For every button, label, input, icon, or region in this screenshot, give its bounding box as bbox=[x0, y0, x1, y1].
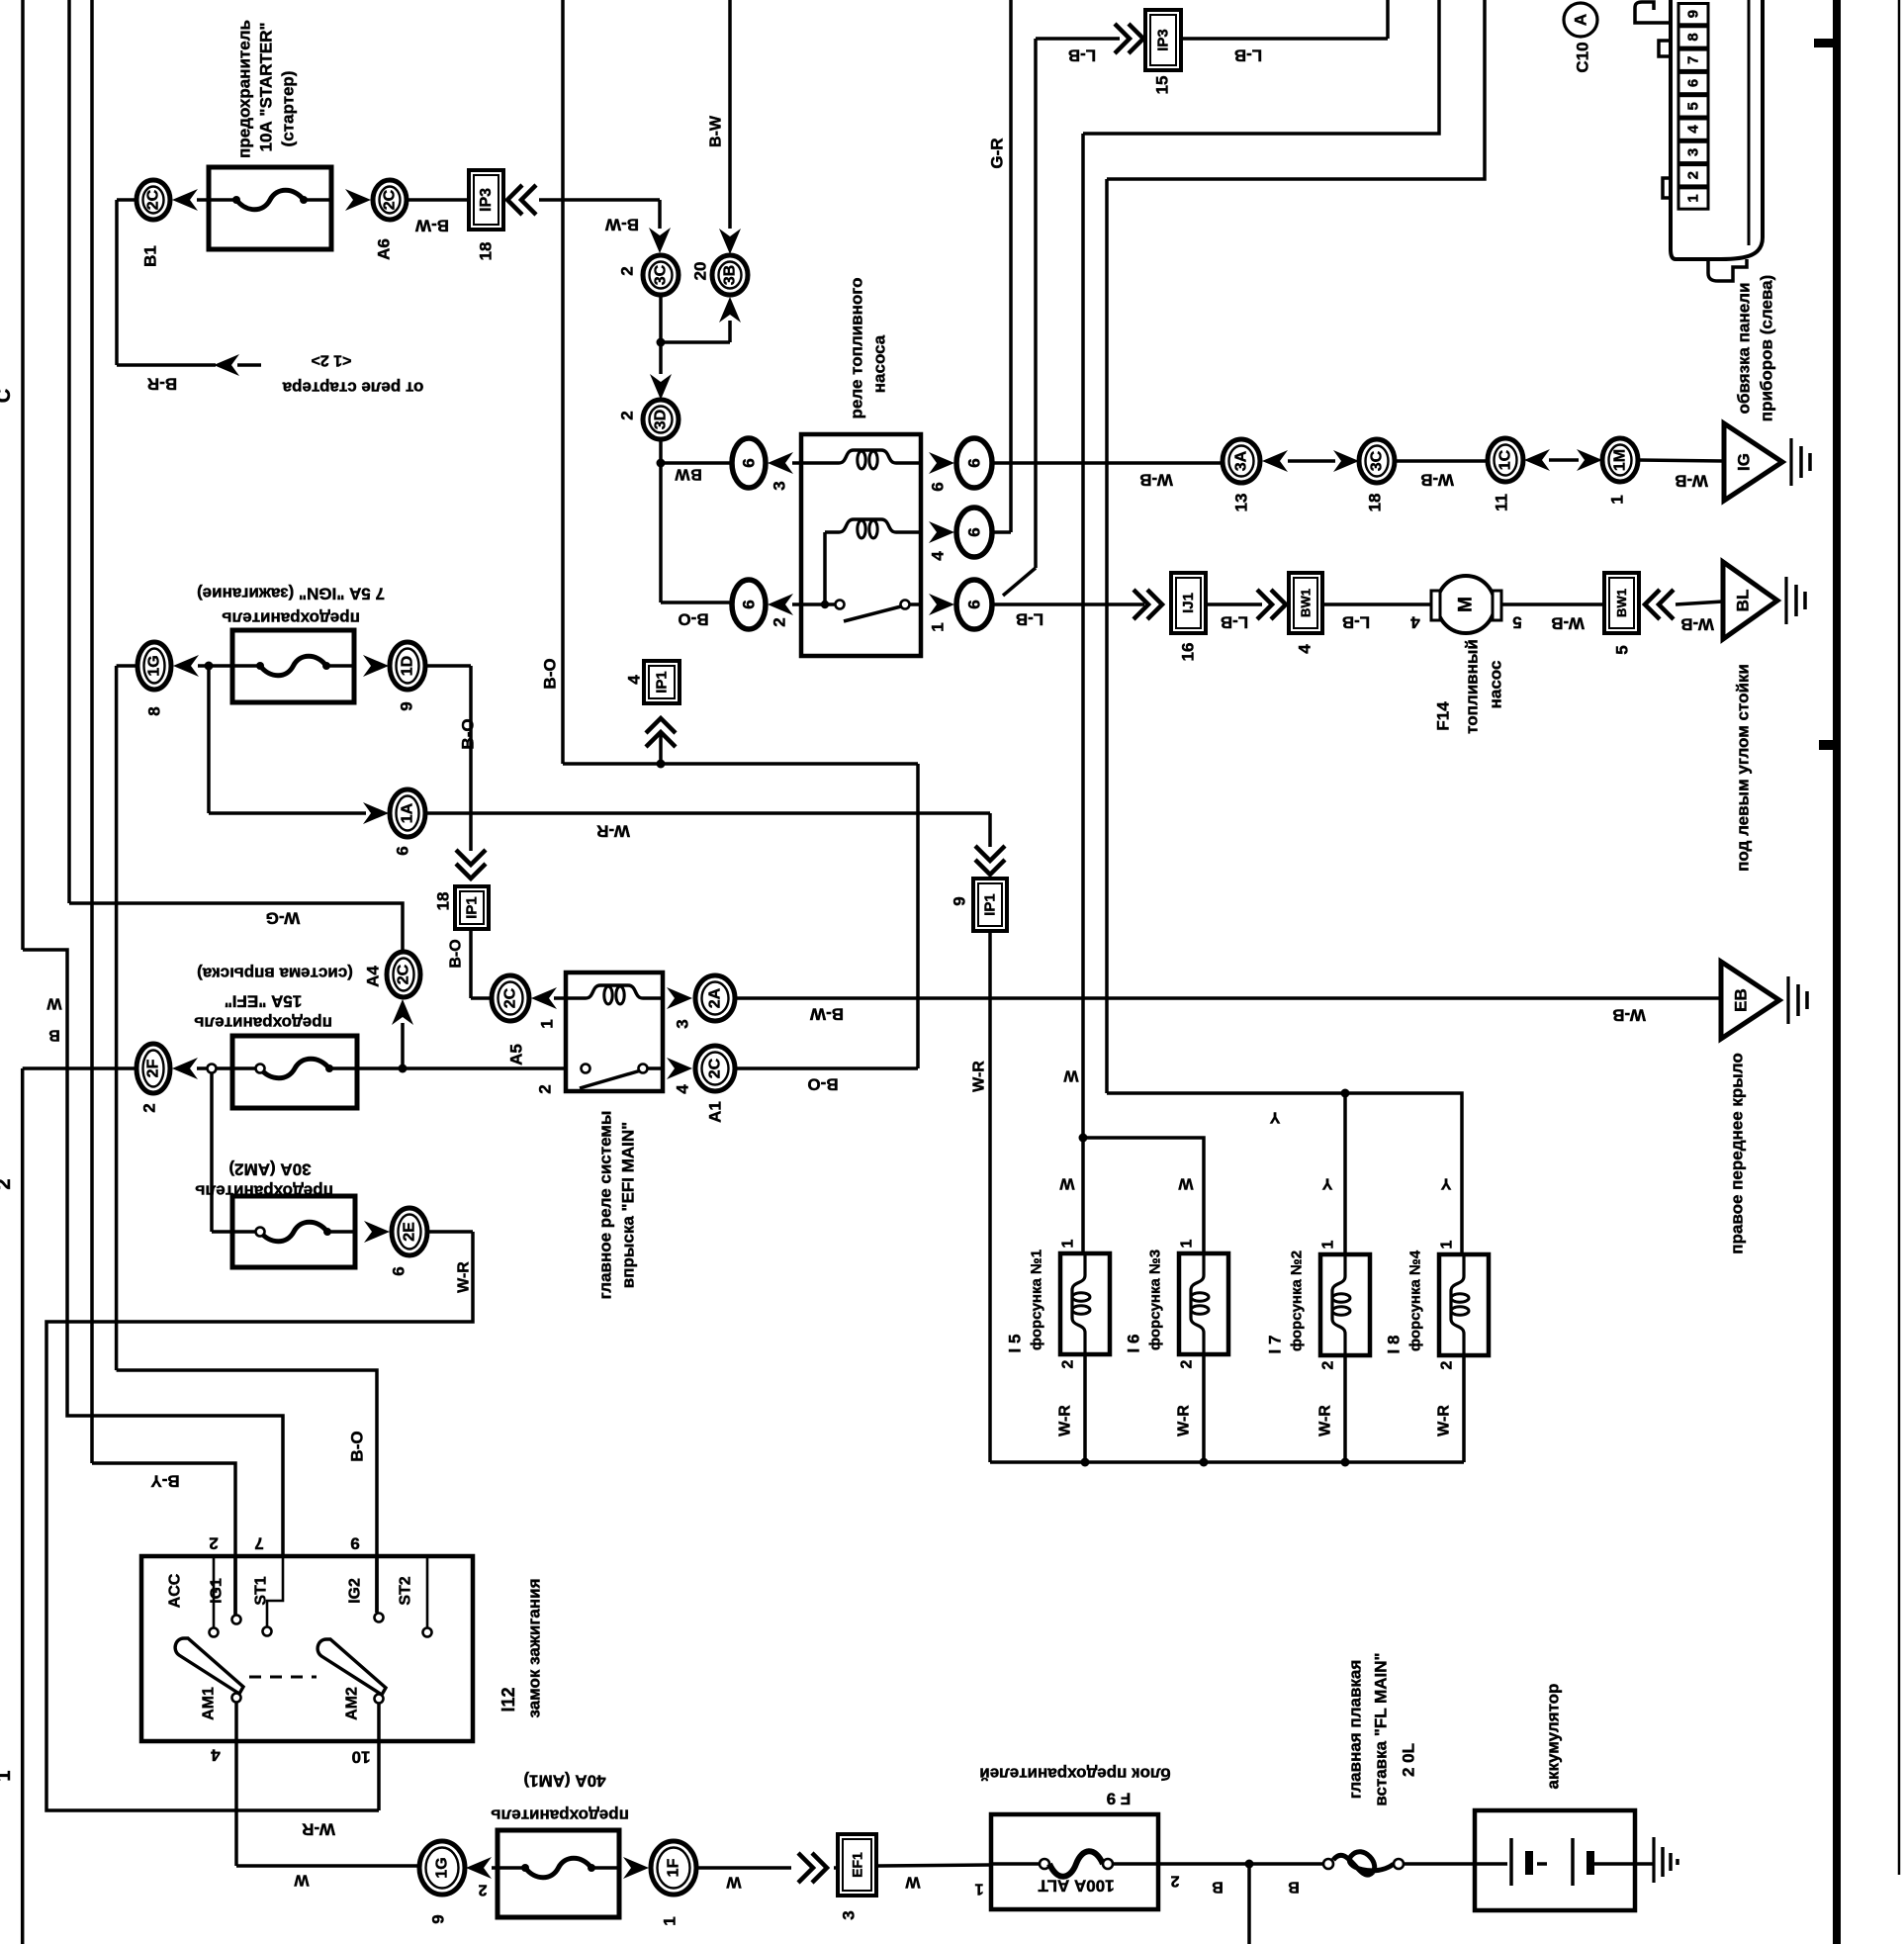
svg-text:W-R: W-R bbox=[971, 1061, 988, 1092]
svg-text:1: 1 bbox=[1685, 194, 1702, 202]
svg-text:B-W: B-W bbox=[708, 115, 725, 147]
svg-text:7: 7 bbox=[254, 1534, 263, 1553]
svg-text:IP3: IP3 bbox=[478, 188, 495, 212]
svg-text:W-B: W-B bbox=[1420, 471, 1454, 490]
svg-text:L-B: L-B bbox=[1016, 610, 1043, 629]
svg-text:А6: А6 bbox=[375, 238, 394, 260]
svg-text:2: 2 bbox=[1685, 171, 1702, 179]
svg-text:2: 2 bbox=[1179, 1359, 1196, 1368]
svg-text:4: 4 bbox=[1685, 125, 1702, 134]
svg-text:W-R: W-R bbox=[1176, 1405, 1193, 1436]
svg-text:20: 20 bbox=[691, 262, 710, 281]
svg-text:30А (АМ2): 30А (АМ2) bbox=[228, 1160, 311, 1179]
svg-text:4: 4 bbox=[674, 1084, 692, 1094]
svg-text:5: 5 bbox=[1613, 645, 1632, 654]
svg-text:7 5А "IGN" (зажигание): 7 5А "IGN" (зажигание) bbox=[197, 585, 385, 603]
svg-text:L-B: L-B bbox=[1234, 46, 1262, 65]
svg-text:насоса: насоса bbox=[870, 334, 889, 393]
svg-text:1G: 1G bbox=[434, 1857, 451, 1878]
svg-text:BW1: BW1 bbox=[1614, 589, 1629, 617]
svg-text:G-R: G-R bbox=[988, 138, 1007, 168]
svg-text:W-R: W-R bbox=[596, 822, 630, 841]
svg-text:15: 15 bbox=[1153, 76, 1172, 95]
svg-text:4: 4 bbox=[625, 675, 644, 685]
svg-text:3D: 3D bbox=[653, 410, 670, 429]
svg-text:W-R: W-R bbox=[302, 1820, 335, 1839]
svg-text:B: B bbox=[1212, 1879, 1224, 1896]
svg-text:форсунка №3: форсунка №3 bbox=[1147, 1250, 1164, 1350]
svg-text:9: 9 bbox=[1685, 10, 1702, 18]
svg-text:форсунка №2: форсунка №2 bbox=[1289, 1250, 1306, 1351]
svg-text:W-B: W-B bbox=[1612, 1006, 1646, 1025]
svg-text:1: 1 bbox=[1060, 1239, 1077, 1248]
svg-text:1C: 1C bbox=[1497, 449, 1514, 470]
svg-text:C10: C10 bbox=[1574, 42, 1592, 72]
svg-text:2: 2 bbox=[1060, 1359, 1077, 1368]
svg-text:3A: 3A bbox=[1233, 450, 1250, 471]
svg-text:форсунка №1: форсунка №1 bbox=[1029, 1250, 1045, 1350]
svg-text:F 9: F 9 bbox=[1107, 1790, 1132, 1808]
svg-text:6: 6 bbox=[390, 1266, 408, 1275]
svg-text:предохранитель: предохранитель bbox=[491, 1806, 629, 1825]
svg-text:9: 9 bbox=[350, 1534, 359, 1553]
svg-text:2: 2 bbox=[140, 1103, 159, 1112]
svg-text:IG2: IG2 bbox=[347, 1578, 364, 1604]
svg-text:6: 6 bbox=[965, 600, 984, 608]
svg-text:1A: 1A bbox=[400, 802, 416, 823]
svg-text:2: 2 bbox=[771, 617, 789, 626]
svg-text:под левым углом стойки: под левым углом стойки bbox=[1734, 664, 1753, 872]
svg-text:6: 6 bbox=[1685, 79, 1702, 87]
svg-text:W-R: W-R bbox=[456, 1261, 473, 1293]
svg-text:A: A bbox=[1572, 14, 1590, 26]
svg-text:обвязка панели: обвязка панели bbox=[1735, 283, 1754, 415]
svg-text:ST2: ST2 bbox=[398, 1576, 414, 1605]
svg-text:2C: 2C bbox=[502, 987, 519, 1008]
svg-text:1: 1 bbox=[538, 1019, 557, 1028]
svg-text:M: M bbox=[1456, 597, 1477, 612]
svg-text:4: 4 bbox=[1296, 644, 1315, 654]
svg-text:2A: 2A bbox=[707, 987, 724, 1008]
svg-text:2E: 2E bbox=[402, 1222, 418, 1242]
svg-text:3: 3 bbox=[1685, 148, 1702, 156]
svg-text:B-O: B-O bbox=[459, 718, 478, 749]
svg-text:реле топливного: реле топливного bbox=[848, 278, 866, 419]
svg-text:6: 6 bbox=[740, 458, 759, 467]
svg-text:B-Y: B-Y bbox=[150, 1472, 180, 1491]
svg-text:правое переднее крыло: правое переднее крыло bbox=[1728, 1053, 1747, 1254]
svg-text:9: 9 bbox=[429, 1914, 448, 1923]
svg-text:I 6: I 6 bbox=[1125, 1335, 1143, 1353]
svg-text:18: 18 bbox=[477, 242, 496, 261]
svg-text:Y: Y bbox=[1321, 1175, 1332, 1192]
svg-text:IP1: IP1 bbox=[654, 671, 671, 694]
svg-text:форсунка №4: форсунка №4 bbox=[1407, 1250, 1424, 1351]
svg-text:3: 3 bbox=[674, 1019, 692, 1028]
svg-text:IP1: IP1 bbox=[982, 893, 999, 916]
svg-text:BL: BL bbox=[1734, 590, 1753, 612]
svg-text:F14: F14 bbox=[1434, 701, 1453, 731]
svg-text:Y: Y bbox=[1440, 1175, 1451, 1192]
svg-text:18: 18 bbox=[1366, 494, 1385, 512]
svg-text:5: 5 bbox=[1512, 613, 1521, 632]
svg-text:предохранитель: предохранитель bbox=[194, 1014, 332, 1033]
svg-text:от реле стартера: от реле стартера bbox=[282, 379, 423, 398]
svg-text:6: 6 bbox=[965, 458, 984, 467]
svg-text:100А ALT: 100А ALT bbox=[1038, 1877, 1115, 1896]
svg-text:2C: 2C bbox=[396, 964, 412, 984]
svg-text:2: 2 bbox=[209, 1534, 218, 1553]
svg-text:EB: EB bbox=[1732, 988, 1751, 1012]
svg-text:1F: 1F bbox=[666, 1858, 682, 1877]
svg-text:I 8: I 8 bbox=[1385, 1336, 1404, 1354]
svg-text:IG: IG bbox=[1735, 453, 1754, 471]
svg-text:замок зажигания: замок зажигания bbox=[525, 1578, 544, 1717]
svg-text:1: 1 bbox=[661, 1916, 680, 1925]
svg-text:2F: 2F bbox=[145, 1059, 162, 1077]
svg-text:4: 4 bbox=[211, 1746, 221, 1765]
svg-text:40А (АМ1): 40А (АМ1) bbox=[523, 1772, 605, 1791]
svg-text:6: 6 bbox=[740, 600, 759, 608]
svg-text:W-R: W-R bbox=[1436, 1405, 1453, 1436]
svg-text:B-O: B-O bbox=[807, 1075, 838, 1094]
svg-text:16: 16 bbox=[1179, 643, 1198, 662]
svg-text:1: 1 bbox=[1439, 1240, 1456, 1249]
svg-text:B: B bbox=[1288, 1879, 1300, 1896]
svg-text:3C: 3C bbox=[653, 264, 670, 285]
svg-text:1: 1 bbox=[974, 1881, 983, 1898]
svg-text:W: W bbox=[1178, 1175, 1194, 1192]
svg-text:L-B: L-B bbox=[1068, 46, 1096, 65]
svg-text:Y: Y bbox=[1269, 1109, 1280, 1126]
svg-text:B-R: B-R bbox=[147, 375, 177, 394]
svg-text:10А "STARTER": 10А "STARTER" bbox=[257, 22, 276, 151]
svg-text:W-B: W-B bbox=[1675, 472, 1708, 491]
svg-text:B1: B1 bbox=[141, 245, 160, 267]
svg-text:W: W bbox=[46, 995, 62, 1012]
svg-text:W: W bbox=[1063, 1067, 1079, 1084]
svg-text:IJ1: IJ1 bbox=[1180, 593, 1197, 613]
svg-text:приборов (слева): приборов (слева) bbox=[1758, 275, 1776, 421]
svg-text:W-B: W-B bbox=[1139, 471, 1173, 490]
svg-text:7: 7 bbox=[1685, 56, 1702, 64]
svg-text:А4: А4 bbox=[364, 966, 383, 987]
svg-text:предохранитель: предохранитель bbox=[235, 20, 254, 158]
svg-text:L-B: L-B bbox=[1342, 613, 1370, 632]
svg-text:насос: насос bbox=[1487, 661, 1505, 709]
svg-text:блок предохранителей: блок предохранителей bbox=[979, 1765, 1170, 1784]
svg-text:IG1: IG1 bbox=[209, 1578, 226, 1604]
svg-text:I12: I12 bbox=[499, 1687, 518, 1712]
svg-text:3B: 3B bbox=[722, 265, 739, 285]
svg-text:W: W bbox=[905, 1874, 921, 1891]
svg-text:W-B: W-B bbox=[1551, 614, 1585, 633]
svg-text:6: 6 bbox=[929, 482, 948, 491]
svg-text:B-O: B-O bbox=[541, 658, 560, 689]
svg-text:главная плавкая: главная плавкая bbox=[1346, 1660, 1365, 1800]
svg-text:15А "EFI": 15А "EFI" bbox=[225, 992, 302, 1011]
svg-text:1M: 1M bbox=[1612, 449, 1629, 471]
svg-text:9: 9 bbox=[951, 896, 969, 905]
svg-text:2: 2 bbox=[0, 1178, 15, 1189]
svg-text:6: 6 bbox=[394, 846, 412, 855]
svg-text:главное реле системы: главное реле системы bbox=[596, 1111, 615, 1300]
svg-text:9: 9 bbox=[398, 701, 416, 710]
svg-text:B: B bbox=[48, 1027, 60, 1044]
svg-text:1D: 1D bbox=[400, 656, 416, 676]
svg-text:B-W: B-W bbox=[809, 1005, 844, 1024]
svg-text:АМ2: АМ2 bbox=[344, 1687, 361, 1720]
svg-text:B-O: B-O bbox=[348, 1431, 367, 1461]
svg-text:BW1: BW1 bbox=[1299, 589, 1314, 617]
svg-text:IP1: IP1 bbox=[464, 896, 481, 919]
svg-text:W-R: W-R bbox=[1057, 1405, 1074, 1436]
svg-text:B-W: B-W bbox=[604, 216, 639, 234]
svg-text:А5: А5 bbox=[507, 1044, 526, 1065]
svg-text:3C: 3C bbox=[1369, 450, 1386, 471]
svg-text:2C: 2C bbox=[707, 1058, 724, 1078]
svg-text:4: 4 bbox=[929, 551, 948, 561]
svg-text:аккумулятор: аккумулятор bbox=[1544, 1684, 1563, 1790]
svg-text:18: 18 bbox=[434, 892, 453, 911]
svg-text:2: 2 bbox=[618, 411, 637, 419]
svg-text:W: W bbox=[726, 1874, 742, 1891]
svg-text:10: 10 bbox=[352, 1748, 371, 1767]
svg-text:1: 1 bbox=[1608, 495, 1627, 504]
svg-text:4: 4 bbox=[1410, 613, 1420, 632]
svg-text:2: 2 bbox=[1170, 1873, 1179, 1890]
svg-text:B-O: B-O bbox=[448, 939, 465, 968]
svg-text:6: 6 bbox=[965, 527, 984, 536]
svg-text:8: 8 bbox=[1685, 33, 1702, 41]
svg-text:2C: 2C bbox=[145, 189, 162, 210]
svg-text:2 0L: 2 0L bbox=[1400, 1743, 1418, 1777]
svg-text:I 5: I 5 bbox=[1006, 1335, 1025, 1353]
svg-text:11: 11 bbox=[1493, 494, 1511, 511]
svg-text:2C: 2C bbox=[382, 189, 399, 210]
svg-text:8: 8 bbox=[145, 706, 164, 715]
svg-text:предохранитель: предохранитель bbox=[222, 609, 360, 628]
svg-text:2: 2 bbox=[618, 266, 637, 275]
svg-text:1: 1 bbox=[929, 622, 948, 631]
svg-text:L-B: L-B bbox=[1221, 613, 1248, 632]
svg-text:2: 2 bbox=[536, 1084, 555, 1093]
svg-text:2: 2 bbox=[1320, 1360, 1337, 1369]
svg-text:АМ1: АМ1 bbox=[201, 1687, 218, 1720]
svg-text:топливный: топливный bbox=[1463, 639, 1482, 734]
svg-text:(система впрыска): (система впрыска) bbox=[197, 965, 353, 983]
svg-text:B-O: B-O bbox=[678, 610, 708, 629]
svg-text:B: B bbox=[690, 466, 702, 483]
svg-text:ACC: ACC bbox=[167, 1573, 184, 1608]
svg-text:впрыска "EFI MAIN": впрыска "EFI MAIN" bbox=[619, 1122, 638, 1289]
svg-text:W-R: W-R bbox=[1317, 1405, 1334, 1436]
svg-text:вставка "FL MAIN": вставка "FL MAIN" bbox=[1372, 1652, 1391, 1805]
svg-text:C: C bbox=[0, 389, 15, 403]
svg-text:I 7: I 7 bbox=[1266, 1336, 1285, 1354]
svg-text:3: 3 bbox=[771, 481, 789, 490]
svg-text:13: 13 bbox=[1232, 494, 1251, 512]
svg-text:1: 1 bbox=[1320, 1240, 1337, 1249]
svg-text:B-W: B-W bbox=[414, 217, 449, 235]
svg-text:2: 2 bbox=[478, 1882, 487, 1898]
svg-text:<1 2>: <1 2> bbox=[312, 352, 352, 369]
svg-text:(стартер): (стартер) bbox=[279, 71, 298, 147]
svg-text:5: 5 bbox=[1685, 102, 1702, 110]
svg-text:W: W bbox=[294, 1872, 310, 1889]
svg-text:3: 3 bbox=[840, 1910, 859, 1919]
svg-text:А1: А1 bbox=[706, 1101, 725, 1123]
svg-text:W-G: W-G bbox=[266, 909, 301, 928]
svg-text:2: 2 bbox=[1439, 1360, 1456, 1369]
svg-text:W: W bbox=[675, 466, 690, 483]
svg-text:1G: 1G bbox=[146, 655, 163, 676]
svg-text:1: 1 bbox=[0, 1770, 15, 1781]
svg-text:EF1: EF1 bbox=[850, 1852, 865, 1878]
svg-text:1: 1 bbox=[1179, 1239, 1196, 1248]
svg-text:IP3: IP3 bbox=[1155, 29, 1172, 51]
svg-text:W: W bbox=[1059, 1175, 1075, 1192]
svg-text:W-B: W-B bbox=[1680, 615, 1714, 634]
